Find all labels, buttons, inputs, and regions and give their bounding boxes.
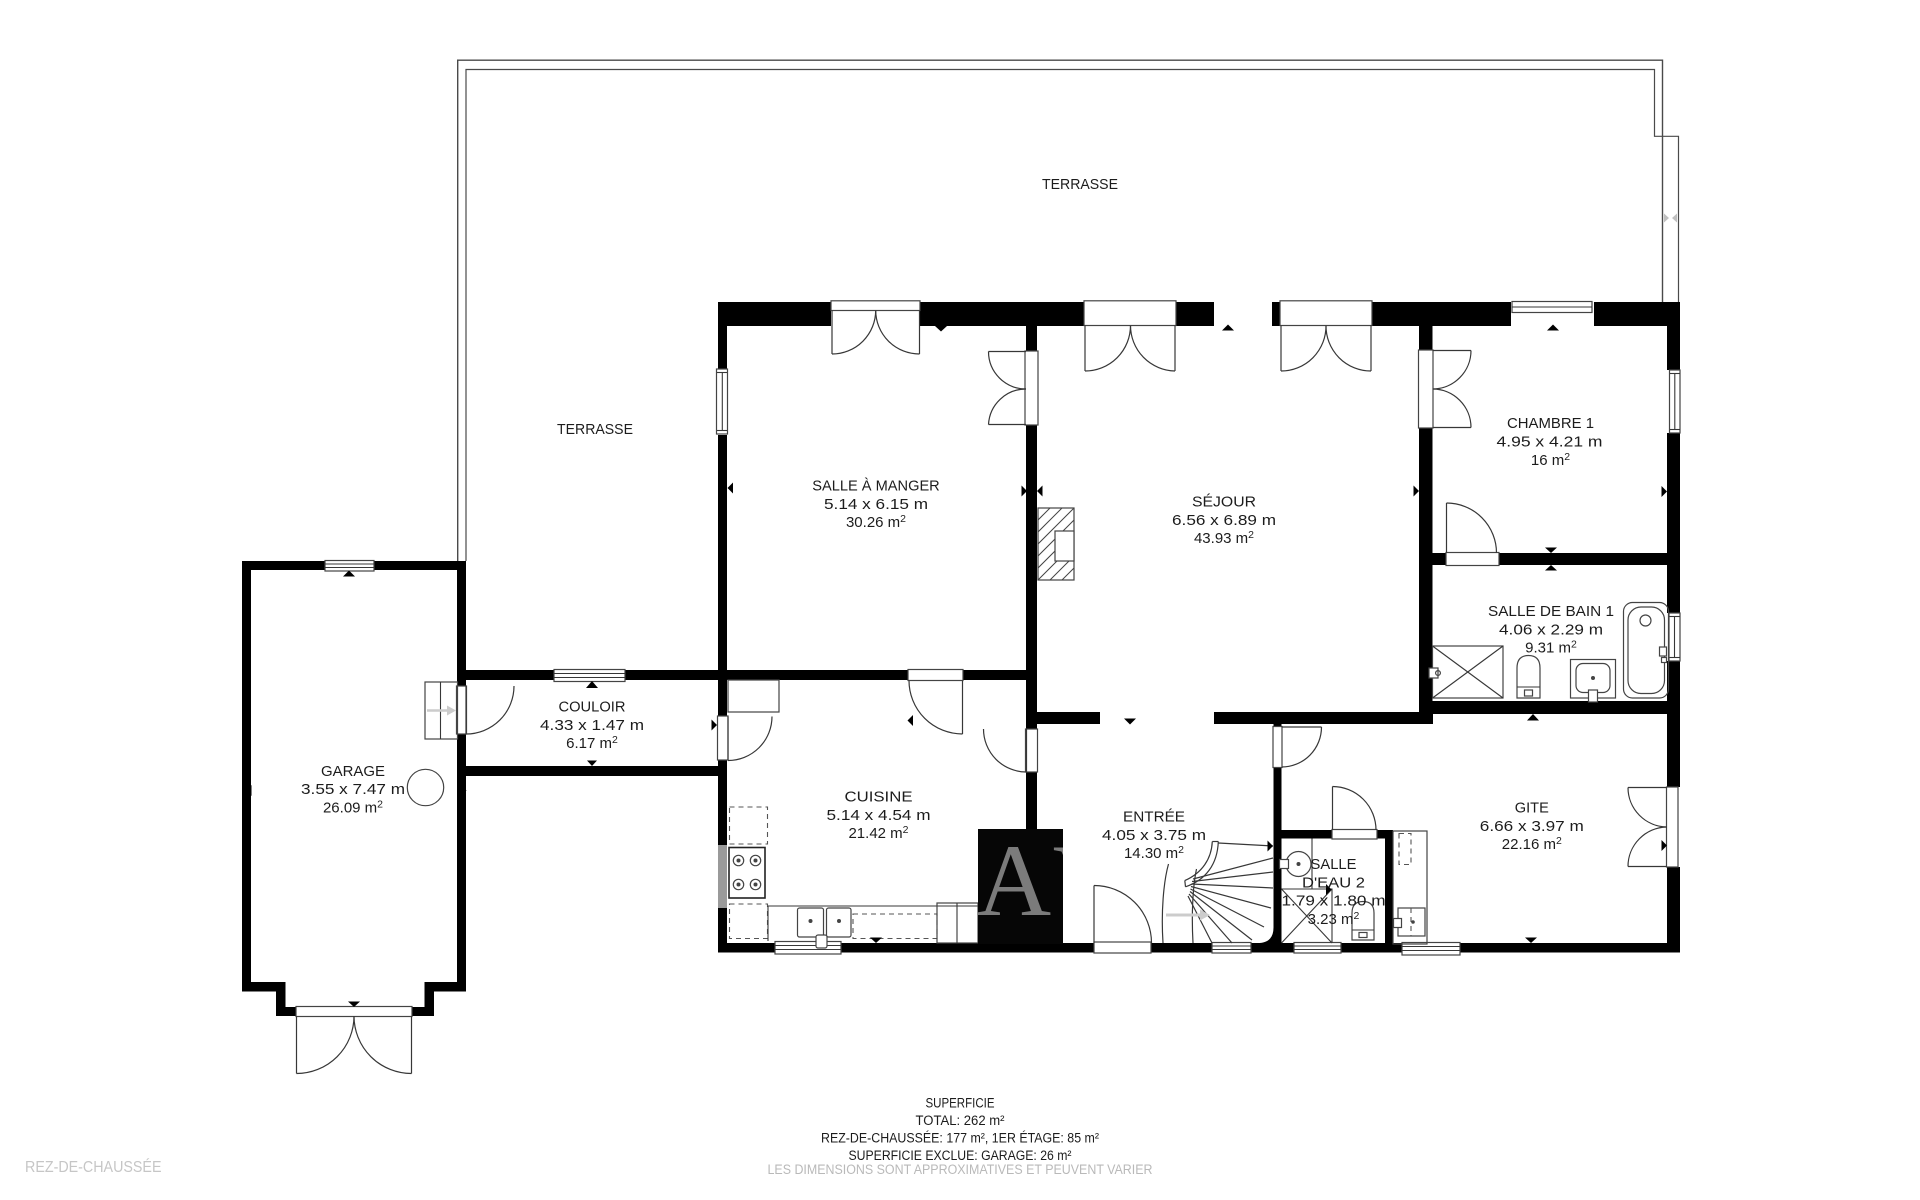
svg-text:TERRASSE: TERRASSE [557,421,633,438]
svg-text:CUISINE: CUISINE [845,789,913,806]
svg-text:A: A [977,824,1051,938]
svg-text:6.56 x 6.89 m: 6.56 x 6.89 m [1172,512,1276,529]
svg-text:REZ-DE-CHAUSSÉE: 177 m², 1ER É: REZ-DE-CHAUSSÉE: 177 m², 1ER ÉTAGE: 85 m… [821,1131,1099,1146]
svg-text:SALLE DE BAIN 1: SALLE DE BAIN 1 [1488,603,1614,620]
svg-text:REZ-DE-CHAUSSÉE: REZ-DE-CHAUSSÉE [25,1159,162,1176]
svg-text:4.95 x 4.21 m: 4.95 x 4.21 m [1497,434,1603,451]
svg-text:SUPERFICIE EXCLUE: GARAGE: 26: SUPERFICIE EXCLUE: GARAGE: 26 m² [849,1148,1072,1163]
svg-text:TOTAL: 262 m²: TOTAL: 262 m² [916,1113,1005,1128]
svg-text:3.55 x 7.47 m: 3.55 x 7.47 m [301,781,405,798]
svg-text:5.14 x 4.54 m: 5.14 x 4.54 m [827,807,931,824]
svg-text:SUPERFICIE: SUPERFICIE [926,1096,995,1111]
svg-text:9.31 m2: 9.31 m2 [1525,639,1577,657]
svg-text:30.26 m2: 30.26 m2 [846,513,906,531]
svg-text:6.66 x 3.97 m: 6.66 x 3.97 m [1480,818,1584,835]
svg-text:14.30 m2: 14.30 m2 [1124,844,1184,862]
svg-text:1.79 x 1.80 m: 1.79 x 1.80 m [1282,893,1386,910]
svg-text:6.17 m2: 6.17 m2 [566,734,618,752]
svg-text:4.33 x 1.47 m: 4.33 x 1.47 m [540,717,644,734]
svg-text:SÉJOUR: SÉJOUR [1192,494,1256,511]
svg-text:22.16 m2: 22.16 m2 [1502,835,1562,853]
svg-text:GARAGE: GARAGE [321,763,385,780]
svg-text:26.09 m2: 26.09 m2 [323,798,383,816]
svg-text:COULOIR: COULOIR [559,699,626,716]
svg-text:GITE: GITE [1515,800,1549,817]
svg-text:SALLE: SALLE [1311,856,1357,873]
svg-text:21.42 m2: 21.42 m2 [848,824,908,842]
svg-text:5.14 x 6.15 m: 5.14 x 6.15 m [824,496,928,513]
svg-text:TERRASSE: TERRASSE [1042,176,1118,193]
svg-text:3.23 m2: 3.23 m2 [1308,910,1360,928]
svg-text:4.06 x 2.29 m: 4.06 x 2.29 m [1499,621,1603,638]
svg-text:43.93 m2: 43.93 m2 [1194,529,1254,547]
svg-text:ENTRÉE: ENTRÉE [1123,809,1185,826]
svg-text:LES DIMENSIONS SONT APPROXIMAT: LES DIMENSIONS SONT APPROXIMATIVES ET PE… [768,1162,1153,1177]
svg-text:SALLE À MANGER: SALLE À MANGER [812,478,940,495]
svg-text:4.05 x 3.75 m: 4.05 x 3.75 m [1102,827,1206,844]
svg-text:D'EAU 2: D'EAU 2 [1302,874,1365,891]
svg-text:CHAMBRE 1: CHAMBRE 1 [1507,415,1594,432]
